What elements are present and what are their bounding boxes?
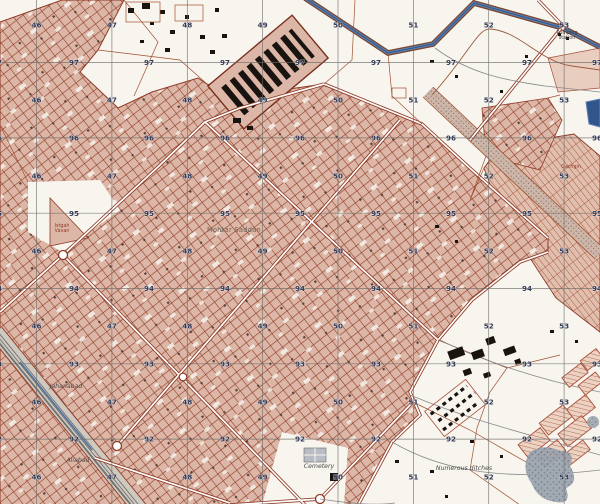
grid-number: 47 <box>107 21 117 30</box>
grid-number: 49 <box>258 96 268 105</box>
place-label: Mohtar Saddan <box>207 226 261 234</box>
grid-number: 93 <box>144 359 154 368</box>
grid-number: 51 <box>408 398 418 407</box>
grid-number: 92 <box>295 435 305 444</box>
grid-number: 51 <box>408 247 418 256</box>
grid-number: 97 <box>69 58 79 67</box>
grid-number: 53 <box>559 172 569 181</box>
grid-number: 96 <box>371 134 381 143</box>
grid-number: 97 <box>592 58 600 67</box>
grid-number: 97 <box>220 58 230 67</box>
grid-number: 51 <box>408 473 418 482</box>
grid-number: 95 <box>220 209 230 218</box>
grid-number: 92 <box>144 435 154 444</box>
grid-number: 97 <box>446 58 456 67</box>
grid-number: 92 <box>371 435 381 444</box>
grid-number: 47 <box>107 172 117 181</box>
grid-number: 46 <box>31 322 41 331</box>
grid-number: 50 <box>333 172 343 181</box>
grid-number: 97 <box>522 58 532 67</box>
grid-number: 52 <box>484 473 494 482</box>
grid-number: 46 <box>31 398 41 407</box>
grid-number: 48 <box>182 172 192 181</box>
grid-number: 48 <box>182 322 192 331</box>
grid-number: 95 <box>144 209 154 218</box>
grid-number: 96 <box>69 134 79 143</box>
map-canvas[interactable]: 4646464646464647474747474747484848484848… <box>0 0 600 504</box>
grid-number: 50 <box>333 398 343 407</box>
marsh-spot <box>587 416 599 428</box>
grid-number: 96 <box>592 134 600 143</box>
grid-number: 94 <box>592 284 600 293</box>
grid-number: 94 <box>371 284 381 293</box>
place-label: Jahanabad <box>48 383 83 390</box>
grid-number: 93 <box>69 359 79 368</box>
grid-number: 47 <box>107 322 117 331</box>
grid-number: 93 <box>522 359 532 368</box>
grid-number: 49 <box>258 172 268 181</box>
grid-number: 95 <box>446 209 456 218</box>
grid-number: 47 <box>107 398 117 407</box>
grid-number: 92 <box>522 435 532 444</box>
grid-number: 47 <box>107 96 117 105</box>
grid-number: 93 <box>592 359 600 368</box>
grid-number: 49 <box>258 398 268 407</box>
grid-number: 46 <box>31 473 41 482</box>
place-label: Numerous ditches <box>436 464 493 472</box>
grid-number: 96 <box>295 134 305 143</box>
grid-number: 92 <box>592 435 600 444</box>
grid-number: 48 <box>182 473 192 482</box>
grid-number: 97 <box>371 58 381 67</box>
grid-number: 95 <box>522 209 532 218</box>
grid-number: 93 <box>371 359 381 368</box>
grid-number: 48 <box>182 247 192 256</box>
grid-number: 95 <box>295 209 305 218</box>
grid-number: 46 <box>31 247 41 256</box>
grid-number: 46 <box>31 21 41 30</box>
grid-number: 95 <box>592 209 600 218</box>
grid-number: 52 <box>484 96 494 105</box>
grid-number: 95 <box>69 209 79 218</box>
grid-number: 49 <box>258 473 268 482</box>
grid-number: 97 <box>144 58 154 67</box>
grid-number: 95 <box>0 209 2 218</box>
grid-number: 52 <box>484 172 494 181</box>
grid-number: 50 <box>333 21 343 30</box>
grid-number: 51 <box>408 322 418 331</box>
grid-number: 96 <box>144 134 154 143</box>
place-label: Gachgin <box>561 164 581 170</box>
place-label: Aliabad <box>65 457 89 464</box>
grid-number: 97 <box>295 58 305 67</box>
grid-number: 94 <box>0 284 2 293</box>
grid-number: 47 <box>107 473 117 482</box>
grid-number: 92 <box>220 435 230 444</box>
grid-number: 93 <box>0 359 2 368</box>
topo-map-svg: 4646464646464647474747474747484848484848… <box>0 0 600 504</box>
grid-number: 95 <box>371 209 381 218</box>
grid-number: 50 <box>333 247 343 256</box>
grid-number: 53 <box>559 398 569 407</box>
grid-number: 50 <box>333 96 343 105</box>
grid-number: 93 <box>446 359 456 368</box>
grid-number: 48 <box>182 96 192 105</box>
grid-number: 49 <box>258 322 268 331</box>
grid-number: 50 <box>333 473 343 482</box>
grid-number: 96 <box>0 134 2 143</box>
place-label: Vavan <box>55 228 70 234</box>
grid-number: 94 <box>69 284 79 293</box>
grid-number: 51 <box>408 172 418 181</box>
grid-number: 97 <box>0 58 2 67</box>
grid-number: 53 <box>559 21 569 30</box>
grid-number: 53 <box>559 322 569 331</box>
grid-number: 51 <box>408 21 418 30</box>
grid-number: 53 <box>559 247 569 256</box>
grid-number: 92 <box>0 435 2 444</box>
grid-number: 94 <box>144 284 154 293</box>
grid-number: 52 <box>484 322 494 331</box>
grid-number: 53 <box>559 96 569 105</box>
grid-number: 52 <box>484 398 494 407</box>
grid-number: 50 <box>333 322 343 331</box>
grid-number: 96 <box>522 134 532 143</box>
grid-number: 53 <box>559 473 569 482</box>
grid-number: 48 <box>182 21 192 30</box>
grid-number: 92 <box>69 435 79 444</box>
grid-number: 48 <box>182 398 192 407</box>
grid-number: 94 <box>446 284 456 293</box>
grid-number: 94 <box>522 284 532 293</box>
place-label: Cemetery <box>304 462 335 470</box>
grid-number: 49 <box>258 247 268 256</box>
grid-number: 52 <box>484 247 494 256</box>
grid-number: 94 <box>220 284 230 293</box>
place-label: station <box>559 35 576 41</box>
grid-number: 96 <box>446 134 456 143</box>
grid-number: 92 <box>446 435 456 444</box>
grid-number: 46 <box>31 172 41 181</box>
grid-number: 51 <box>408 96 418 105</box>
grid-number: 52 <box>484 21 494 30</box>
grid-number: 96 <box>220 134 230 143</box>
grid-number: 49 <box>258 21 268 30</box>
grid-number: 93 <box>220 359 230 368</box>
grid-number: 94 <box>295 284 305 293</box>
grid-number: 47 <box>107 247 117 256</box>
grid-number: 46 <box>31 96 41 105</box>
grid-number: 93 <box>295 359 305 368</box>
